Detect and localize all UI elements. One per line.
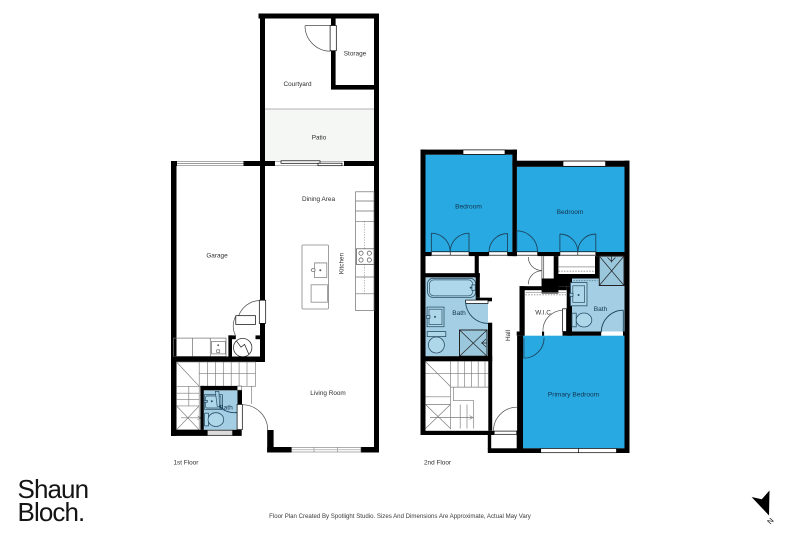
svg-text:Floor Plan Created By Spotligh: Floor Plan Created By Spotlight Studio. …: [269, 513, 532, 520]
svg-text:Living Room: Living Room: [310, 390, 346, 397]
svg-text:Bath: Bath: [452, 310, 466, 317]
svg-text:Storage: Storage: [344, 51, 367, 58]
svg-text:Hall: Hall: [505, 330, 512, 341]
svg-text:Courtyard: Courtyard: [283, 81, 312, 88]
svg-text:W.I.C.: W.I.C.: [535, 310, 553, 317]
svg-text:Garage: Garage: [206, 253, 228, 260]
svg-text:Bedroom: Bedroom: [557, 209, 584, 216]
svg-text:1st Floor: 1st Floor: [174, 460, 200, 467]
svg-text:2nd Floor: 2nd Floor: [424, 460, 452, 467]
svg-text:Bedroom: Bedroom: [455, 204, 482, 211]
svg-text:Bath: Bath: [594, 306, 608, 313]
svg-text:Patio: Patio: [312, 135, 327, 142]
svg-text:Primary Bedroom: Primary Bedroom: [548, 392, 600, 399]
svg-text:Dining Area: Dining Area: [302, 196, 335, 203]
svg-text:Bloch.: Bloch.: [18, 497, 85, 527]
svg-text:Kitchen: Kitchen: [339, 252, 346, 274]
svg-text:Bath: Bath: [219, 405, 233, 412]
